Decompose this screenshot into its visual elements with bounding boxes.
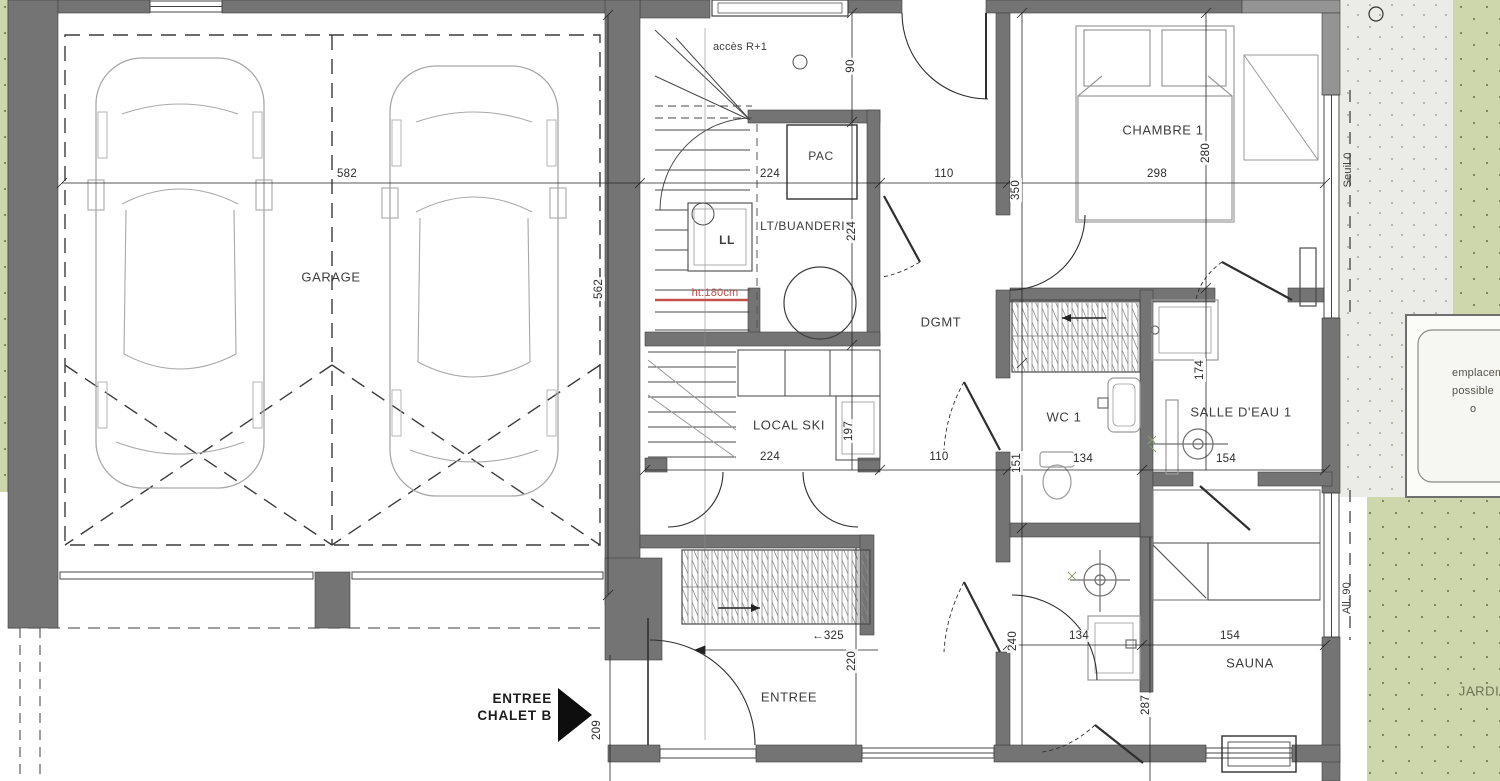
room-label-bedroom: CHAMBRE 1 xyxy=(1122,123,1203,138)
dim-bath2-width: 134 xyxy=(1067,630,1091,642)
placement-text-3: o xyxy=(1470,403,1476,415)
placement-text-1: emplacement xyxy=(1452,367,1500,379)
dim-sauna-width: 154 xyxy=(1218,630,1242,642)
entrance-label: ENTREE CHALET B xyxy=(432,690,552,724)
car-icon xyxy=(382,66,566,496)
height-note-label: ht:180cm xyxy=(692,287,739,299)
room-label-ski: LOCAL SKI xyxy=(753,418,825,433)
dim-hall-mid: 110 xyxy=(927,451,950,463)
dim-wc-width: 134 xyxy=(1071,453,1095,465)
room-label-laundry: LT/BUANDERIE xyxy=(760,219,854,233)
dim-bedroom-depth: 280 xyxy=(1200,141,1212,165)
room-label-garage: GARAGE xyxy=(301,270,360,285)
dim-laundry-depth: 224 xyxy=(846,219,858,243)
sauna-benches xyxy=(1153,490,1320,600)
dim-bedroom-width: 298 xyxy=(1145,168,1169,180)
wardrobe-dgmt xyxy=(1012,300,1140,372)
dim-bath1-depth: 174 xyxy=(1194,358,1206,382)
entrance-label-line2: CHALET B xyxy=(432,707,552,724)
wc-sink-icon xyxy=(1098,378,1140,432)
room-label-bath1: SALLE D'EAU 1 xyxy=(1190,405,1291,420)
dim-ski-depth: 197 xyxy=(843,419,855,443)
placement-box xyxy=(1406,315,1500,497)
plan-linework xyxy=(0,0,1500,781)
toilet-icon xyxy=(1040,452,1074,499)
bath2-vanity-icon xyxy=(1088,616,1140,680)
floor-plan: GARAGE LT/BUANDERIE DGMT CHAMBRE 1 WC 1 … xyxy=(0,0,1500,781)
stairs-access-label: accès R+1 xyxy=(713,41,767,53)
dim-porch: 209 xyxy=(591,718,603,742)
room-label-garden: JARDIN xyxy=(1459,684,1500,699)
dim-90: 90 xyxy=(845,57,857,74)
dim-garage-width: 582 xyxy=(335,168,359,180)
ski-shelves xyxy=(738,350,880,460)
wardrobe-entry xyxy=(682,550,870,624)
dim-garage-depth: 562 xyxy=(593,277,605,301)
heat-pump-label: PAC xyxy=(808,149,834,163)
room-label-entry: ENTREE xyxy=(761,690,817,705)
dim-bedroom-side: 350 xyxy=(1010,178,1022,202)
room-label-hall: DGMT xyxy=(921,315,962,330)
bath1-vanity-icon xyxy=(1151,300,1218,360)
room-label-wc: WC 1 xyxy=(1047,410,1082,425)
washer-label: LL xyxy=(719,233,735,247)
dim-sauna-depth: 287 xyxy=(1140,693,1152,717)
sill-label: All. 90 xyxy=(1341,582,1353,614)
dim-laundry-width: 224 xyxy=(758,168,782,180)
bath2-shower-icon xyxy=(1068,550,1130,612)
dim-wc-side: 151 xyxy=(1011,451,1023,475)
threshold-label: Seuil 0 xyxy=(1342,152,1354,187)
dim-hall-top: 110 xyxy=(932,168,955,180)
bedroom-niche xyxy=(1244,55,1318,160)
lower-stairs-icon xyxy=(648,352,736,458)
dim-closet-arrow: ←325 xyxy=(810,630,846,642)
entrance-arrow-icon xyxy=(558,688,592,742)
parking-bays xyxy=(65,35,600,545)
water-heater-icon xyxy=(784,267,856,339)
dim-ski-width: 224 xyxy=(758,451,782,463)
room-label-sauna: SAUNA xyxy=(1226,656,1274,671)
placement-text-2: possible xyxy=(1452,385,1494,397)
dim-bath1-width: 154 xyxy=(1214,453,1238,465)
entrance-label-line1: ENTREE xyxy=(432,690,552,707)
dim-entry-depth: 220 xyxy=(846,649,858,673)
dim-bath2-side: 240 xyxy=(1007,629,1019,653)
